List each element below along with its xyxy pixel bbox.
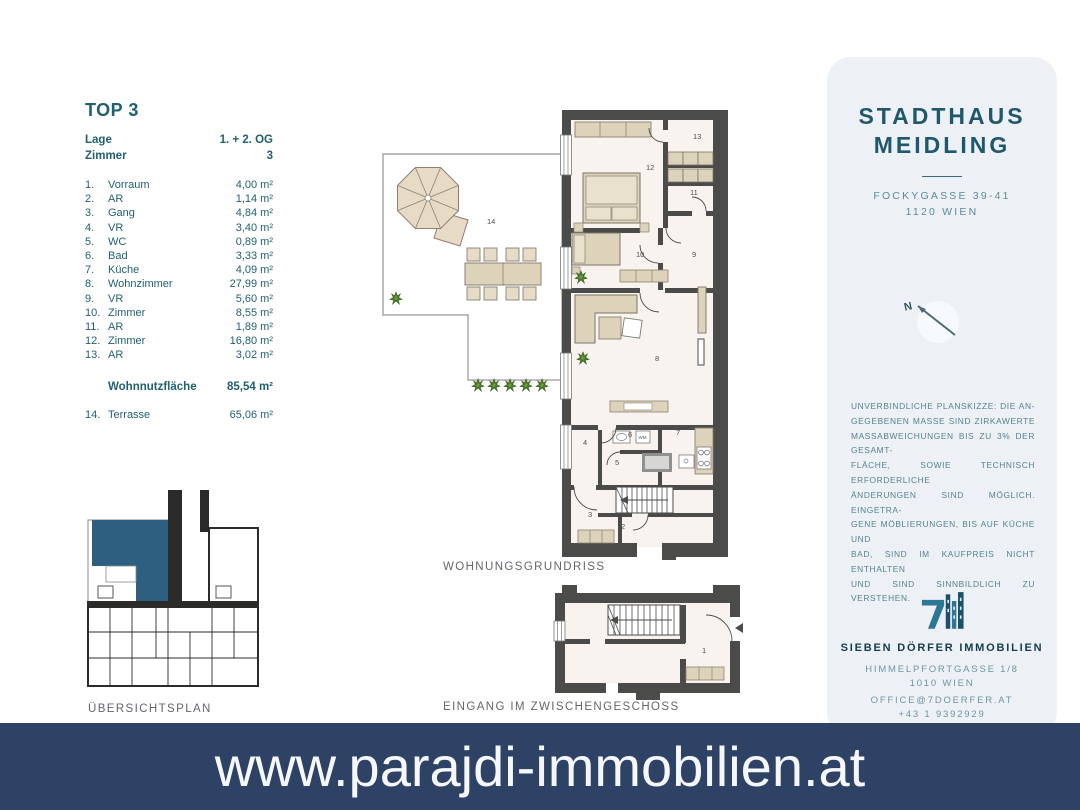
total-row: Wohnnutzfläche 85,54 m²: [85, 381, 273, 393]
room-number: 3.: [85, 206, 108, 220]
sieben-doerfer-logo: [920, 591, 966, 631]
rooms-count-label: Zimmer: [85, 148, 127, 164]
room-number-2: 2: [621, 522, 625, 531]
room-row: 13. AR 3,02 m²: [85, 348, 273, 362]
room-number: 2.: [85, 192, 108, 206]
room-number: 1.: [85, 178, 108, 192]
room-number-10: 10: [636, 250, 644, 259]
room-row: 2. AR 1,14 m²: [85, 192, 273, 206]
room-area: 1,89 m²: [236, 320, 273, 334]
disclaimer-line: ÄNDERUNGEN SIND MÖGLICH. EINGETRA-: [851, 488, 1035, 518]
terrace: 14: [383, 154, 562, 391]
room-area: 4,09 m²: [236, 263, 273, 277]
project-address-line2: 1120 WIEN: [827, 204, 1057, 220]
terrace-name: Terrasse: [108, 409, 230, 421]
room-row: 1. Vorraum 4,00 m²: [85, 178, 273, 192]
website-url: www.parajdi-immobilien.at: [0, 723, 1080, 810]
broker-contact: OFFICE@7DOERFER.AT +43 1 9392929: [827, 694, 1057, 722]
rooms-count-row: Zimmer 3: [85, 148, 273, 164]
room-number-6: 6: [628, 430, 632, 439]
project-title: STADTHAUS MEIDLING: [827, 102, 1057, 160]
project-panel: STADTHAUS MEIDLING FOCKYGASSE 39-41 1120…: [827, 57, 1057, 737]
room-number-14: 14: [487, 217, 495, 226]
room-row: 4. VR 3,40 m²: [85, 221, 273, 235]
compass-icon: N: [880, 280, 990, 360]
room-area: 3,33 m²: [236, 249, 273, 263]
room-area: 16,80 m²: [230, 334, 273, 348]
project-title-line2: MEIDLING: [827, 131, 1057, 160]
room-number: 6.: [85, 249, 108, 263]
room-row: 5. WC 0,89 m²: [85, 235, 273, 249]
caption-overview-plan: ÜBERSICHTSPLAN: [88, 703, 212, 715]
room-area: 4,84 m²: [236, 206, 273, 220]
room-row: 6. Bad 3,33 m²: [85, 249, 273, 263]
room-number: 11.: [85, 320, 108, 334]
room-area: 27,99 m²: [230, 277, 273, 291]
room-list: 1. Vorraum 4,00 m² 2. AR 1,14 m² 3. Gang…: [85, 178, 273, 363]
stairs-icon: [616, 487, 673, 513]
room-number-7: 7: [676, 428, 680, 437]
room-area: 3,40 m²: [236, 221, 273, 235]
broker-name: SIEBEN DÖRFER IMMOBILIEN: [827, 642, 1057, 654]
svg-text:WM: WM: [639, 435, 647, 440]
entrance-room-number-1: 1: [702, 646, 706, 655]
caption-main-plan: WOHNUNGSGRUNDRISS: [443, 561, 605, 573]
unit-info: TOP 3 Lage 1. + 2. OG Zimmer 3 1. Vorrau…: [85, 100, 273, 421]
room-area: 5,60 m²: [236, 292, 273, 306]
room-number: 9.: [85, 292, 108, 306]
room-area: 0,89 m²: [236, 235, 273, 249]
compass-north-label: N: [903, 300, 913, 313]
footer-banner: www.parajdi-immobilien.at: [0, 723, 1080, 810]
bed-icon: [583, 173, 640, 223]
room-number: 12.: [85, 334, 108, 348]
entrance-plan: 1: [550, 585, 745, 703]
project-address-line1: FOCKYGASSE 39-41: [827, 188, 1057, 204]
room-number-12: 12: [646, 163, 654, 172]
coffee-table-icon: [622, 318, 642, 338]
armchair-icon: [599, 317, 621, 339]
room-row: 12. Zimmer 16,80 m²: [85, 334, 273, 348]
room-number-11: 11: [690, 188, 698, 197]
disclaimer-line: MASSABWEICHUNGEN BIS ZU 3% DER GESAMT-: [851, 429, 1035, 459]
room-row: 11. AR 1,89 m²: [85, 320, 273, 334]
shower-icon: [642, 453, 672, 472]
room-number-5: 5: [615, 458, 619, 467]
project-title-line1: STADTHAUS: [827, 102, 1057, 131]
project-address: FOCKYGASSE 39-41 1120 WIEN: [827, 188, 1057, 220]
room-name: WC: [108, 235, 236, 249]
room-name: AR: [108, 192, 236, 206]
room-number-9: 9: [692, 250, 696, 259]
room-number-8: 8: [655, 354, 659, 363]
main-floor-plan: 14: [370, 95, 745, 560]
room-number: 4.: [85, 221, 108, 235]
room-area: 8,55 m²: [236, 306, 273, 320]
room-number-13: 13: [693, 132, 701, 141]
location-row: Lage 1. + 2. OG: [85, 132, 273, 148]
location-value: 1. + 2. OG: [220, 132, 273, 148]
caption-entrance-plan: EINGANG IM ZWISCHENGESCHOSS: [443, 701, 680, 713]
expose-page: TOP 3 Lage 1. + 2. OG Zimmer 3 1. Vorrau…: [0, 0, 1080, 810]
disclaimer-line: GENE MÖBLIERUNGEN, BIS AUF KÜCHE UND: [851, 517, 1035, 547]
room-name: Wohnzimmer: [108, 277, 230, 291]
disclaimer-line: FLÄCHE, SOWIE TECHNISCH ERFORDERLICHE: [851, 458, 1035, 488]
room-number-3: 3: [588, 510, 592, 519]
unit-title: TOP 3: [85, 100, 273, 121]
wardrobe-icon: [578, 530, 614, 543]
room-name: Zimmer: [108, 306, 236, 320]
room-name: AR: [108, 320, 236, 334]
room-row: 7. Küche 4,09 m²: [85, 263, 273, 277]
disclaimer-line: UNVERBINDLICHE PLANSKIZZE: DIE AN-: [851, 399, 1035, 414]
room-name: Gang: [108, 206, 236, 220]
room-number: 5.: [85, 235, 108, 249]
broker-email: OFFICE@7DOERFER.AT: [827, 694, 1057, 708]
room-name: AR: [108, 348, 236, 362]
total-label: Wohnnutzfläche: [108, 381, 227, 393]
room-name: Bad: [108, 249, 236, 263]
washing-machine-icon: WM: [636, 431, 650, 443]
disclaimer-text: UNVERBINDLICHE PLANSKIZZE: DIE AN-GEGEBE…: [851, 399, 1035, 606]
broker-phone: +43 1 9392929: [827, 708, 1057, 722]
room-number-4: 4: [583, 438, 587, 447]
terrace-area: 65,06 m²: [230, 409, 273, 421]
room-row: 9. VR 5,60 m²: [85, 292, 273, 306]
room-number: 8.: [85, 277, 108, 291]
disclaimer-line: GEGEBENEN MASSE SIND ZIRKAWERTE: [851, 414, 1035, 429]
overview-plan: [80, 490, 275, 695]
terrace-row: 14. Terrasse 65,06 m²: [85, 409, 273, 421]
room-area: 1,14 m²: [236, 192, 273, 206]
divider: [922, 176, 962, 177]
room-number: 10.: [85, 306, 108, 320]
entrance-window-icon: [554, 621, 565, 641]
room-area: 4,00 m²: [236, 178, 273, 192]
room-row: 3. Gang 4,84 m²: [85, 206, 273, 220]
disclaimer-line: BAD, SIND IM KAUFPREIS NICHT ENTHALTEN: [851, 547, 1035, 577]
room-number: 13.: [85, 348, 108, 362]
room-name: Vorraum: [108, 178, 236, 192]
room-number: 7.: [85, 263, 108, 277]
broker-address: HIMMELPFORTGASSE 1/8 1010 WIEN: [827, 663, 1057, 691]
room-name: Zimmer: [108, 334, 230, 348]
entrance-wardrobe-icon: [686, 667, 724, 680]
terrace-number: 14.: [85, 409, 108, 421]
entrance-stairs-icon: [608, 605, 680, 635]
location-label: Lage: [85, 132, 112, 148]
total-value: 85,54 m²: [227, 381, 273, 393]
rooms-count-value: 3: [267, 148, 273, 164]
room-name: VR: [108, 221, 236, 235]
room-name: VR: [108, 292, 236, 306]
room-row: 10. Zimmer 8,55 m²: [85, 306, 273, 320]
room-area: 3,02 m²: [236, 348, 273, 362]
room-name: Küche: [108, 263, 236, 277]
room-row: 8. Wohnzimmer 27,99 m²: [85, 277, 273, 291]
